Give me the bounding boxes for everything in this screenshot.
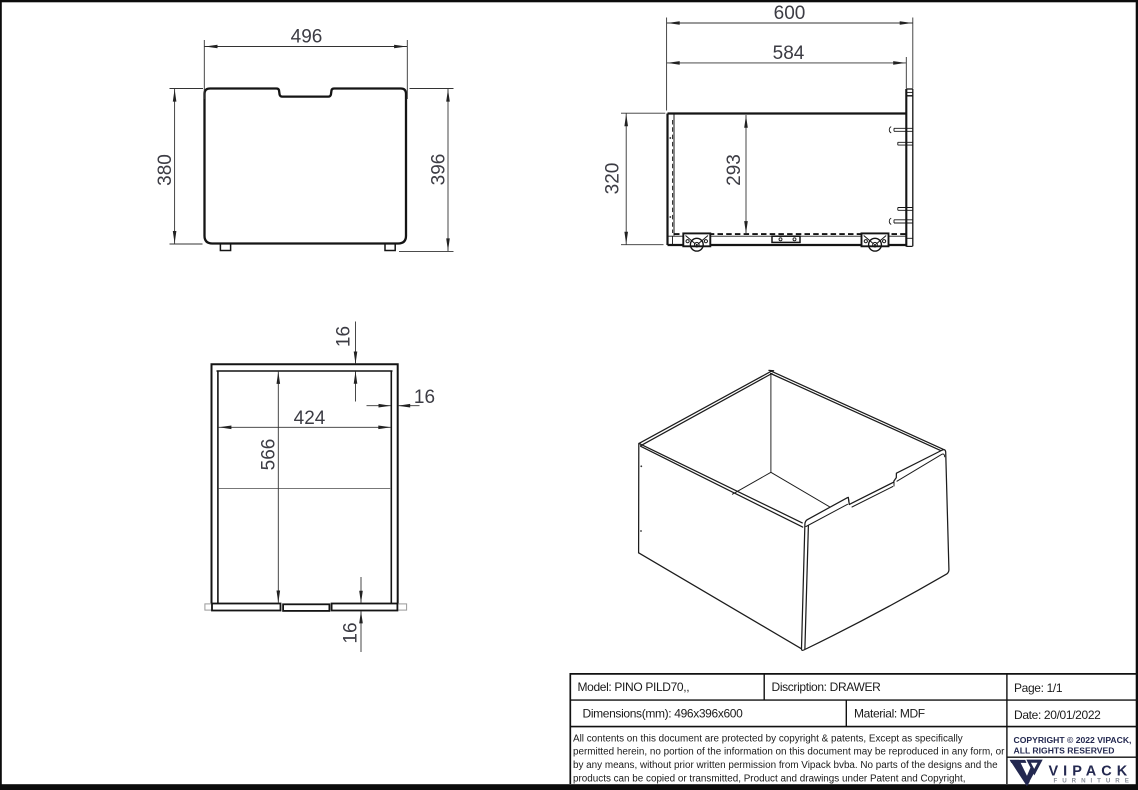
svg-text:Model: PINO PILD70,,: Model: PINO PILD70,,	[578, 680, 690, 694]
svg-text:566: 566	[258, 439, 279, 471]
svg-text:496: 496	[291, 26, 323, 47]
svg-text:320: 320	[602, 163, 623, 195]
svg-text:All contents on this document: All contents on this document are protec…	[573, 734, 963, 745]
svg-text:16: 16	[414, 387, 435, 408]
svg-text:600: 600	[774, 3, 806, 24]
svg-text:293: 293	[724, 154, 745, 186]
svg-text:Material: MDF: Material: MDF	[854, 707, 925, 721]
svg-text:COPYRIGHT © 2022 VIPACK,: COPYRIGHT © 2022 VIPACK,	[1014, 735, 1132, 745]
svg-text:584: 584	[773, 43, 805, 64]
svg-text:16: 16	[340, 622, 361, 643]
svg-text:FURNITURE: FURNITURE	[1054, 778, 1134, 785]
svg-text:ALL RIGHTS RESERVED: ALL RIGHTS RESERVED	[1014, 746, 1115, 756]
svg-text:Dimensions(mm): 496x396x600: Dimensions(mm): 496x396x600	[583, 707, 744, 721]
svg-text:Discription: DRAWER: Discription: DRAWER	[772, 680, 882, 694]
svg-text:permitted herein, no portion o: permitted herein, no portion of the info…	[573, 747, 1005, 758]
svg-text:424: 424	[294, 408, 326, 429]
svg-text:products can be copied or tran: products can be copied or transmitted, P…	[573, 774, 966, 785]
svg-text:Date: 20/01/2022: Date: 20/01/2022	[1014, 708, 1101, 722]
svg-text:by any means, without prior wr: by any means, without prior written perm…	[573, 760, 998, 771]
svg-text:16: 16	[333, 326, 354, 347]
svg-text:Page: 1/1: Page: 1/1	[1014, 681, 1063, 695]
svg-text:396: 396	[428, 154, 449, 186]
svg-text:380: 380	[155, 154, 176, 186]
